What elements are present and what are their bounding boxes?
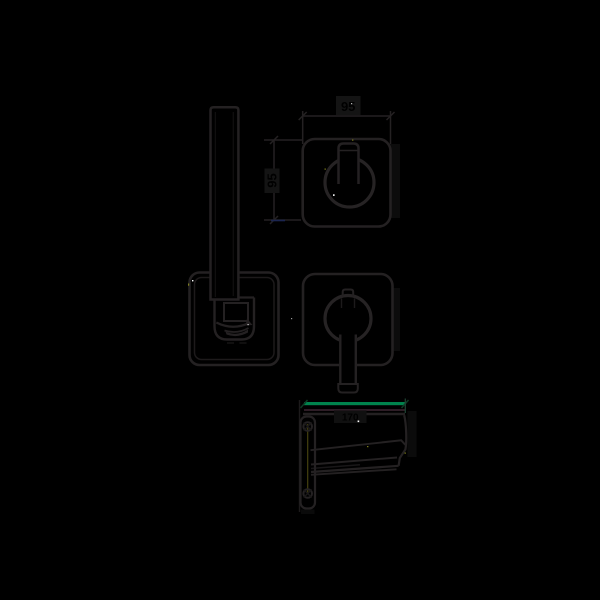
svg-text:95: 95 bbox=[264, 173, 279, 187]
svg-text:170: 170 bbox=[342, 413, 359, 424]
svg-text:95: 95 bbox=[341, 99, 355, 114]
